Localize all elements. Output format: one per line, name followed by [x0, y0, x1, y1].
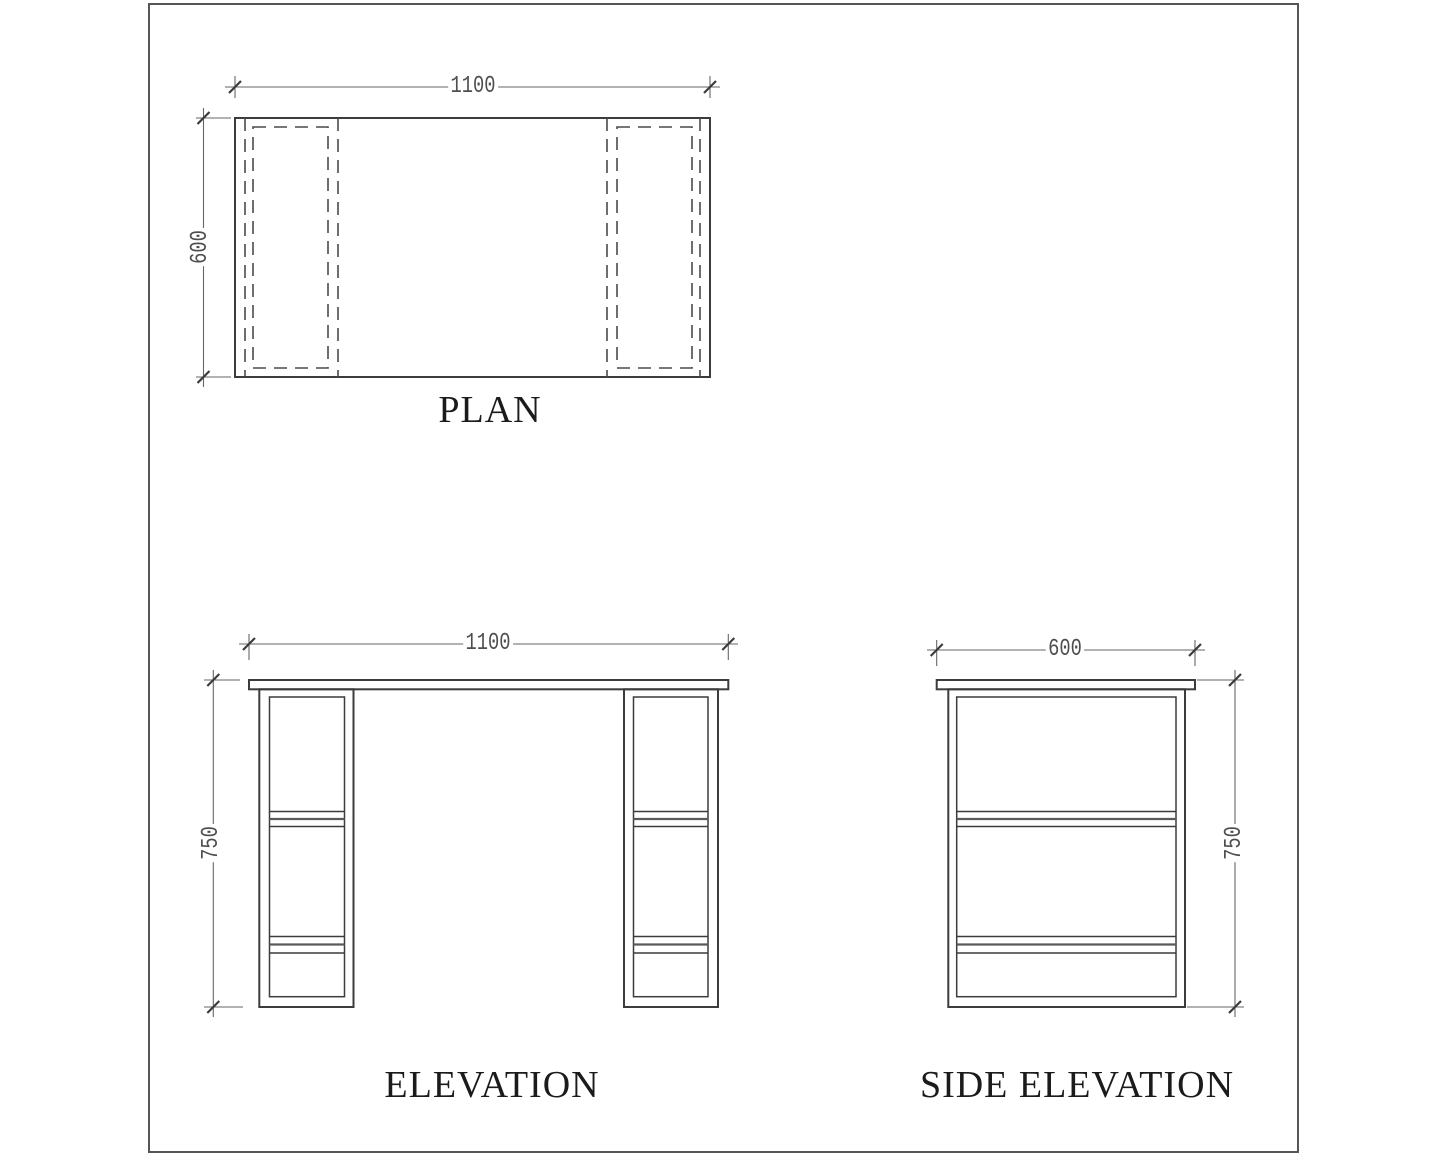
plan-leg-right-hidden-lines	[607, 118, 700, 377]
elevation-dim-width-label: 1100	[463, 631, 513, 657]
leg-inner-panel	[634, 697, 709, 997]
side-elevation-tabletop-slab	[937, 680, 1195, 689]
plan-view-linework	[235, 118, 710, 377]
plan-tabletop-outline	[235, 118, 710, 377]
plan-dim-width-label: 1100	[448, 74, 498, 100]
leg-inner-panel	[957, 697, 1176, 997]
elevation-leg-left	[259, 689, 353, 1007]
leg-inner-panel	[270, 697, 345, 997]
elevation-leg-right	[624, 689, 718, 1007]
elevation-title: ELEVATION	[384, 1063, 599, 1107]
leg-outer-frame	[624, 689, 718, 1007]
plan-title: PLAN	[438, 388, 541, 432]
side-elevation-dim-depth-label: 600	[1046, 637, 1084, 663]
hidden-edge-rect	[253, 127, 328, 368]
elevation-tabletop-slab	[249, 680, 728, 689]
side-elevation-title: SIDE ELEVATION	[920, 1063, 1234, 1107]
hidden-edge-rect	[617, 127, 692, 368]
side-elevation-view-linework	[937, 680, 1195, 1007]
plan-dim-depth-label: 600	[188, 228, 214, 266]
plan-leg-left-hidden-lines	[245, 118, 338, 377]
side-elevation-dim-height-label: 750	[1222, 824, 1248, 862]
elevation-dim-height-label: 750	[199, 824, 225, 862]
leg-outer-frame	[259, 689, 353, 1007]
elevation-view-linework	[249, 680, 728, 1007]
leg-outer-frame	[948, 689, 1185, 1007]
drawing-canvas: 1100 600 PLAN 1100 750 ELEVATION 600 750…	[0, 0, 1445, 1156]
drawing-linework	[0, 0, 1445, 1156]
side-elevation-leg	[948, 689, 1185, 1007]
